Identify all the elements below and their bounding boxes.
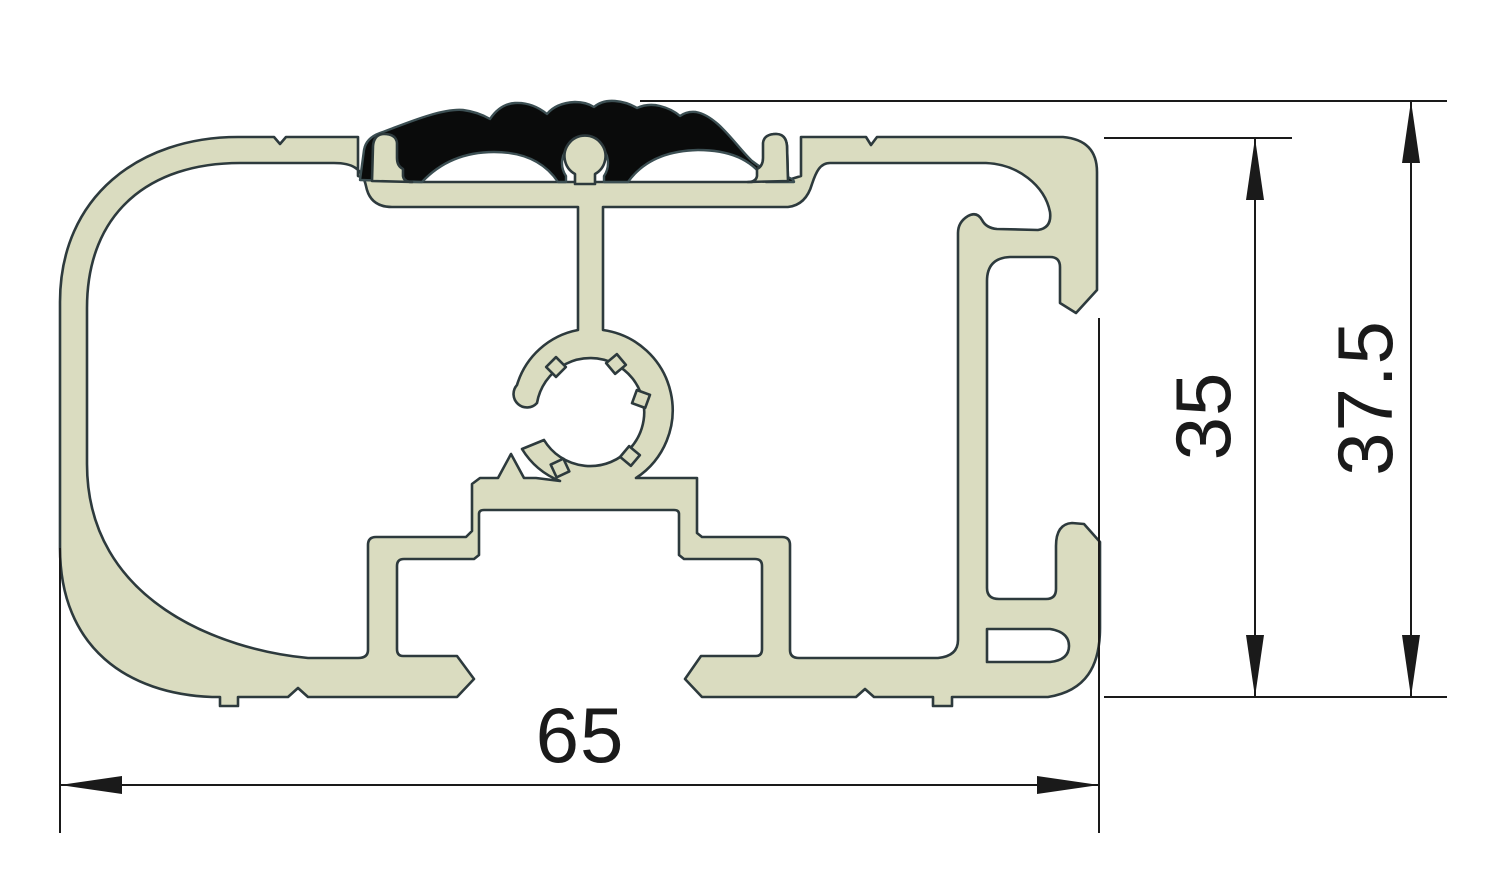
arrow-up-icon — [1402, 101, 1420, 163]
profile-cross-section-svg: 65 35 37.5 — [0, 0, 1500, 886]
technical-drawing-canvas: 65 35 37.5 — [0, 0, 1500, 886]
dimension-inner-height: 35 — [1159, 138, 1264, 697]
aluminium-body-path — [60, 134, 1100, 706]
arrow-down-icon — [1246, 635, 1264, 697]
dimension-overall-height: 37.5 — [1321, 101, 1420, 697]
recess-lip-right — [748, 134, 788, 182]
aluminium-profile — [60, 134, 1100, 706]
boss-tooth-icon — [632, 390, 650, 408]
dimensions: 65 35 37.5 — [60, 101, 1447, 833]
arrow-up-icon — [1246, 138, 1264, 200]
arrow-down-icon — [1402, 635, 1420, 697]
dimension-label-overall-height: 37.5 — [1321, 320, 1409, 476]
rubber-anchor-stem — [564, 136, 605, 184]
dimension-label-width: 65 — [536, 691, 625, 779]
arrow-left-icon — [60, 776, 122, 794]
arrow-right-icon — [1037, 776, 1099, 794]
dimension-label-inner-height: 35 — [1159, 372, 1247, 461]
